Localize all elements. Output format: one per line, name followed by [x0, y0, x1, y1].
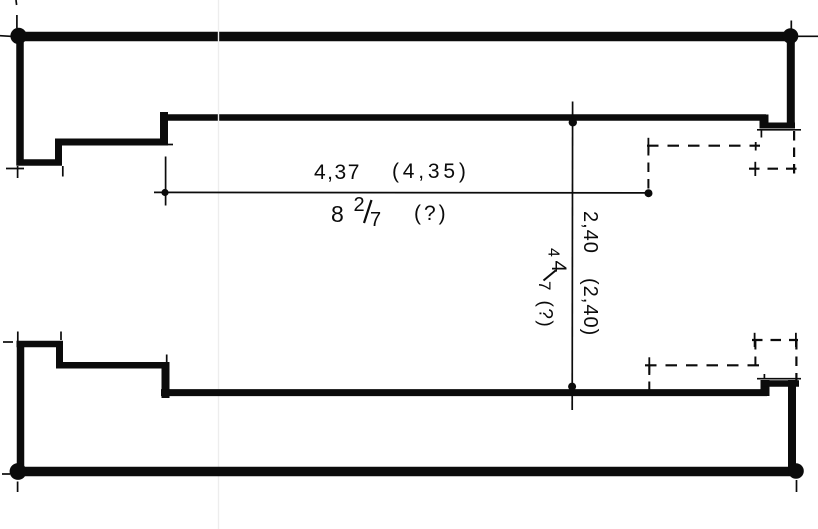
- svg-text:2: 2: [354, 194, 365, 216]
- svg-text:(?): (?): [414, 202, 449, 225]
- svg-text:4: 4: [547, 261, 570, 273]
- svg-text:7: 7: [535, 281, 554, 290]
- svg-text:4: 4: [545, 248, 562, 257]
- svg-text:(4,35): (4,35): [392, 160, 470, 183]
- svg-text:(2,40): (2,40): [579, 278, 601, 336]
- svg-text:2,40: 2,40: [579, 211, 601, 254]
- svg-text:(?): (?): [535, 301, 556, 329]
- svg-text:4,37: 4,37: [314, 161, 361, 184]
- svg-text:7: 7: [370, 209, 381, 231]
- svg-text:8: 8: [331, 201, 344, 227]
